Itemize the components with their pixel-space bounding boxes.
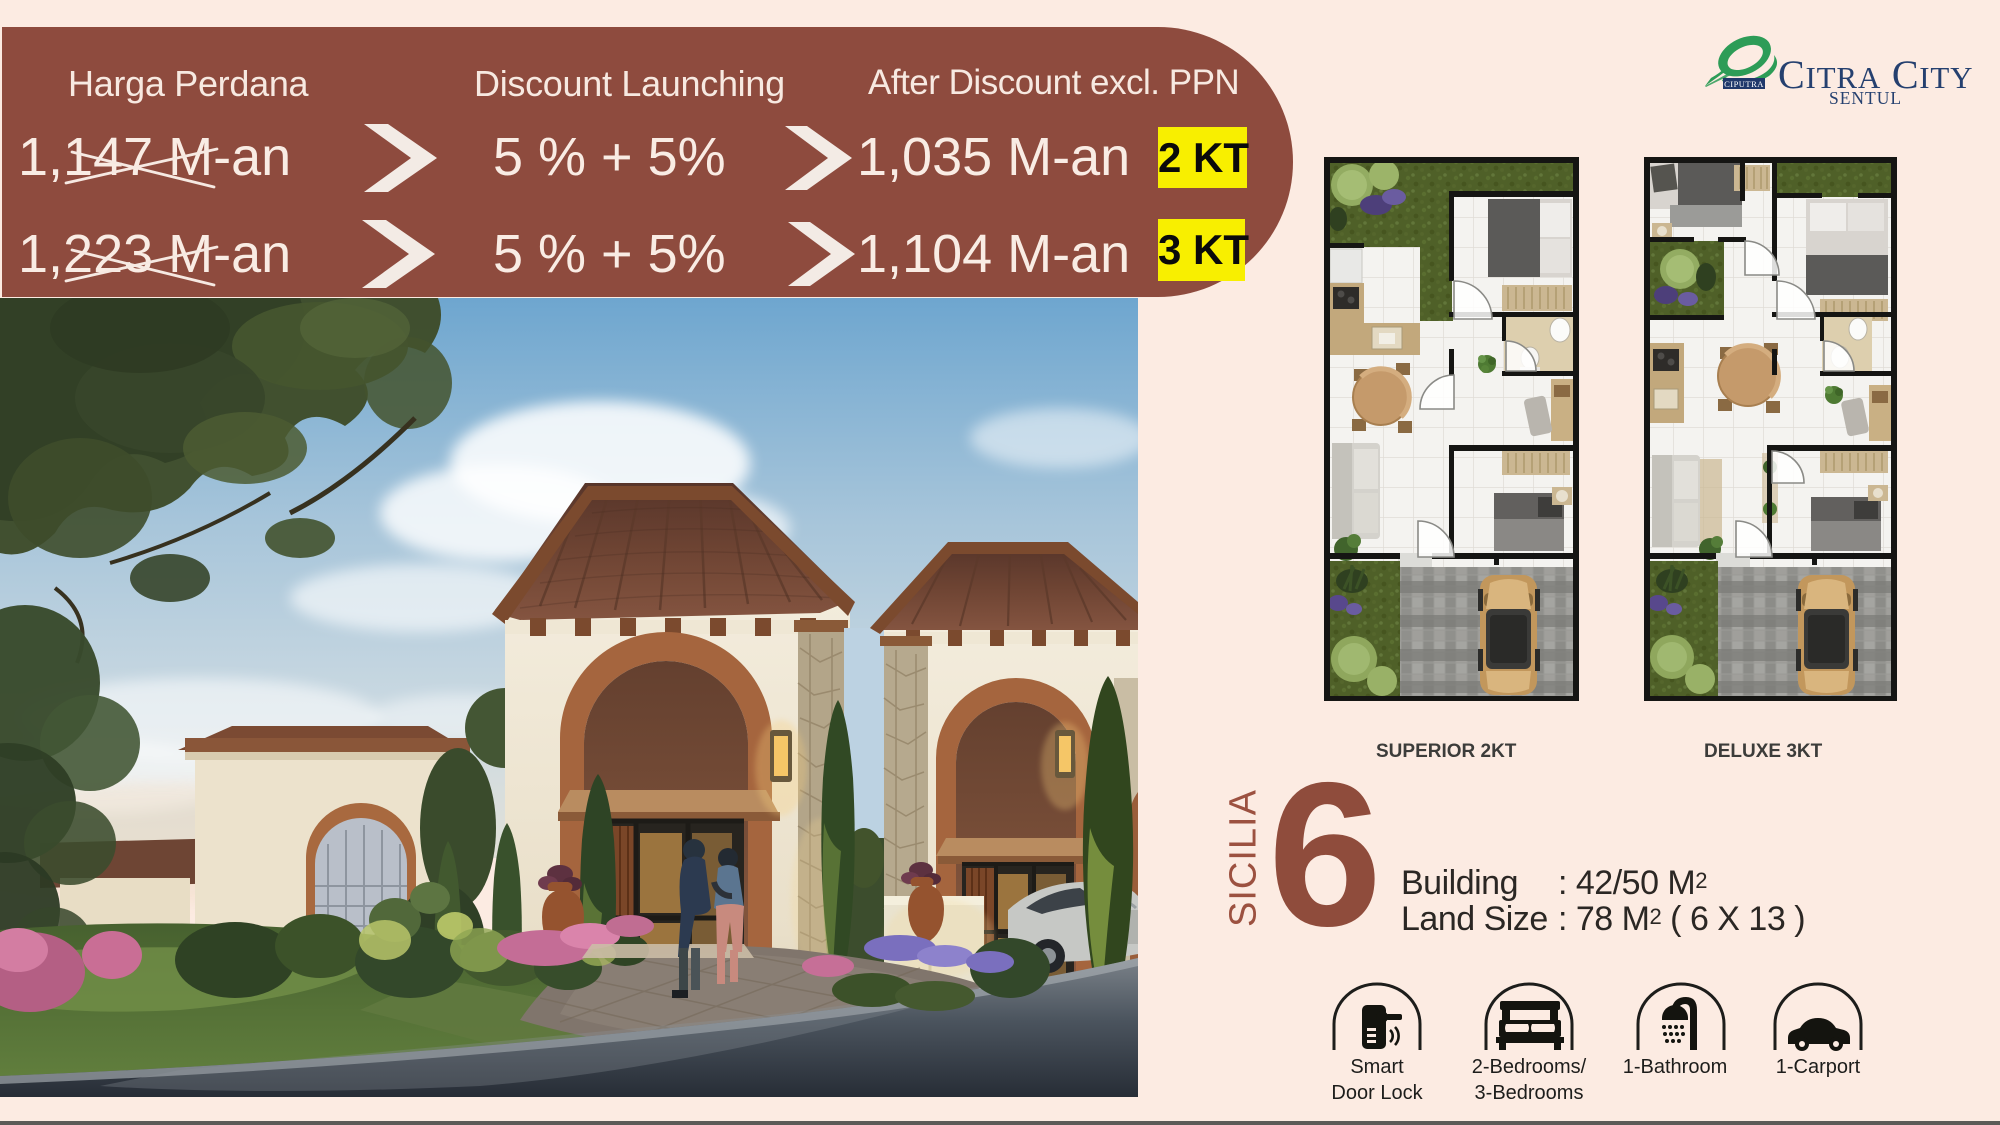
svg-text:SENTUL: SENTUL xyxy=(1829,88,1902,108)
svg-text:CIPUTRA: CIPUTRA xyxy=(1724,79,1764,89)
